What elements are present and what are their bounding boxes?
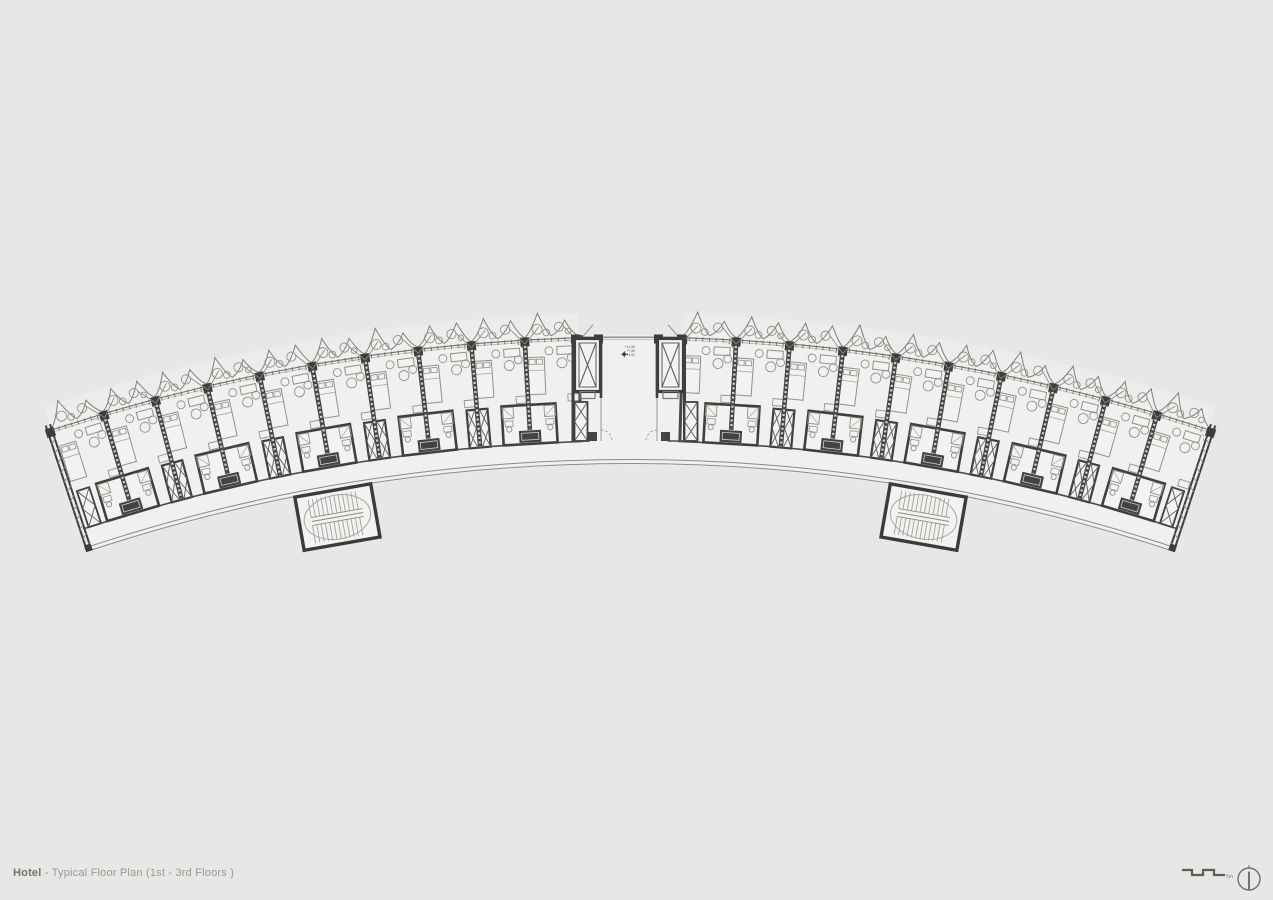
core-pier [661,432,670,441]
mullion-tick [371,354,372,358]
stair-core [295,484,380,551]
mullion-tick [405,350,406,354]
mullion-tick [398,351,399,355]
vanity [519,430,542,443]
scale-bar: 5m [1180,860,1236,886]
mullion-tick [391,352,392,356]
stair-core [881,484,966,551]
scale-bar-line [1182,870,1225,875]
desk [397,358,414,368]
mullion-tick [862,351,863,355]
mullion-tick [385,352,386,356]
north-arrow-icon [1234,862,1264,894]
drawing-sheet: +11.00+7.50+4.00 Hotel - Typical Floor P… [0,0,1273,900]
mullion-tick [856,350,857,354]
mullion-tick [411,349,412,353]
mullion-tick [378,353,379,357]
core-shaft-left [575,402,588,441]
title-bold: Hotel [13,867,42,879]
vanity [719,430,742,443]
mullion-tick [883,353,884,357]
desk [714,347,730,356]
mullion-tick [889,354,890,358]
vanity [417,438,440,452]
mullion-tick [849,349,850,353]
core-shaft-right [685,402,698,441]
level-label: +4.00 [626,353,635,357]
title-rest: - Typical Floor Plan (1st - 3rd Floors ) [42,867,235,879]
desk [872,361,889,371]
floor-plan-drawing: +11.00+7.50+4.00 [0,0,1273,900]
mullion-tick [876,352,877,356]
scale-bar-label: 5m [1226,874,1233,880]
vanity [820,438,843,452]
desk [820,355,837,365]
drawing-title: Hotel - Typical Floor Plan (1st - 3rd Fl… [13,867,234,879]
desk [767,350,784,359]
core-pier [588,432,597,441]
mullion-tick [869,352,870,356]
